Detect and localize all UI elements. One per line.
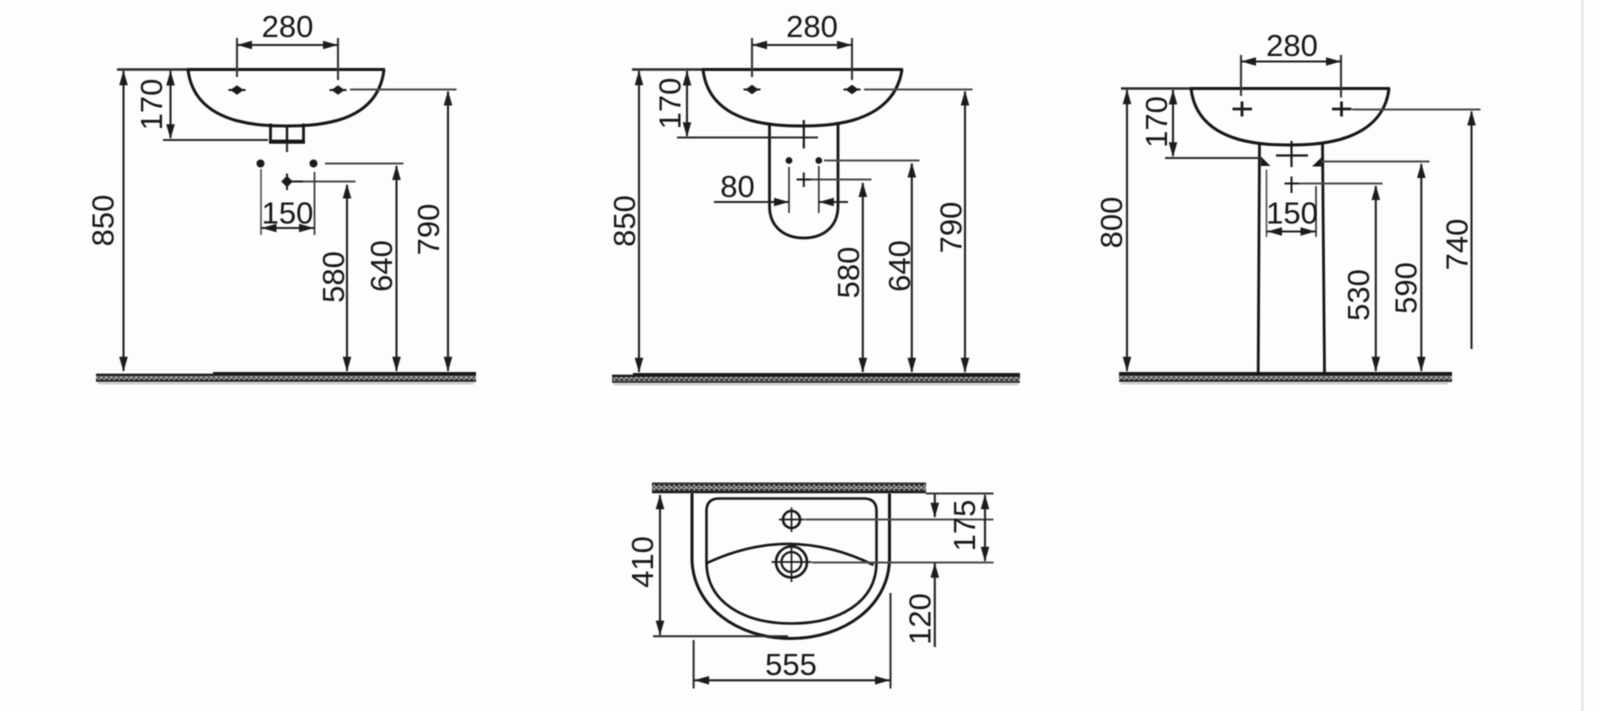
svg-text:580: 580	[316, 251, 351, 303]
svg-text:80: 80	[720, 169, 754, 204]
svg-text:640: 640	[364, 240, 399, 292]
svg-text:850: 850	[607, 195, 642, 247]
svg-text:740: 740	[1440, 219, 1475, 271]
svg-text:120: 120	[903, 593, 938, 645]
svg-text:175: 175	[947, 500, 982, 552]
svg-text:800: 800	[1094, 197, 1129, 249]
svg-text:280: 280	[1266, 28, 1318, 63]
svg-text:580: 580	[831, 247, 866, 299]
svg-text:790: 790	[934, 202, 969, 254]
svg-text:850: 850	[86, 195, 121, 247]
svg-text:280: 280	[786, 9, 838, 44]
svg-text:530: 530	[1341, 269, 1376, 321]
svg-text:150: 150	[1266, 196, 1318, 231]
svg-text:640: 640	[882, 240, 917, 292]
svg-text:410: 410	[625, 536, 660, 588]
svg-text:150: 150	[262, 196, 314, 231]
svg-text:790: 790	[411, 204, 446, 256]
svg-text:170: 170	[1139, 96, 1174, 148]
svg-text:555: 555	[765, 647, 817, 682]
svg-text:590: 590	[1389, 262, 1424, 314]
svg-text:170: 170	[134, 79, 169, 131]
svg-text:280: 280	[262, 9, 314, 44]
svg-text:170: 170	[653, 78, 688, 130]
